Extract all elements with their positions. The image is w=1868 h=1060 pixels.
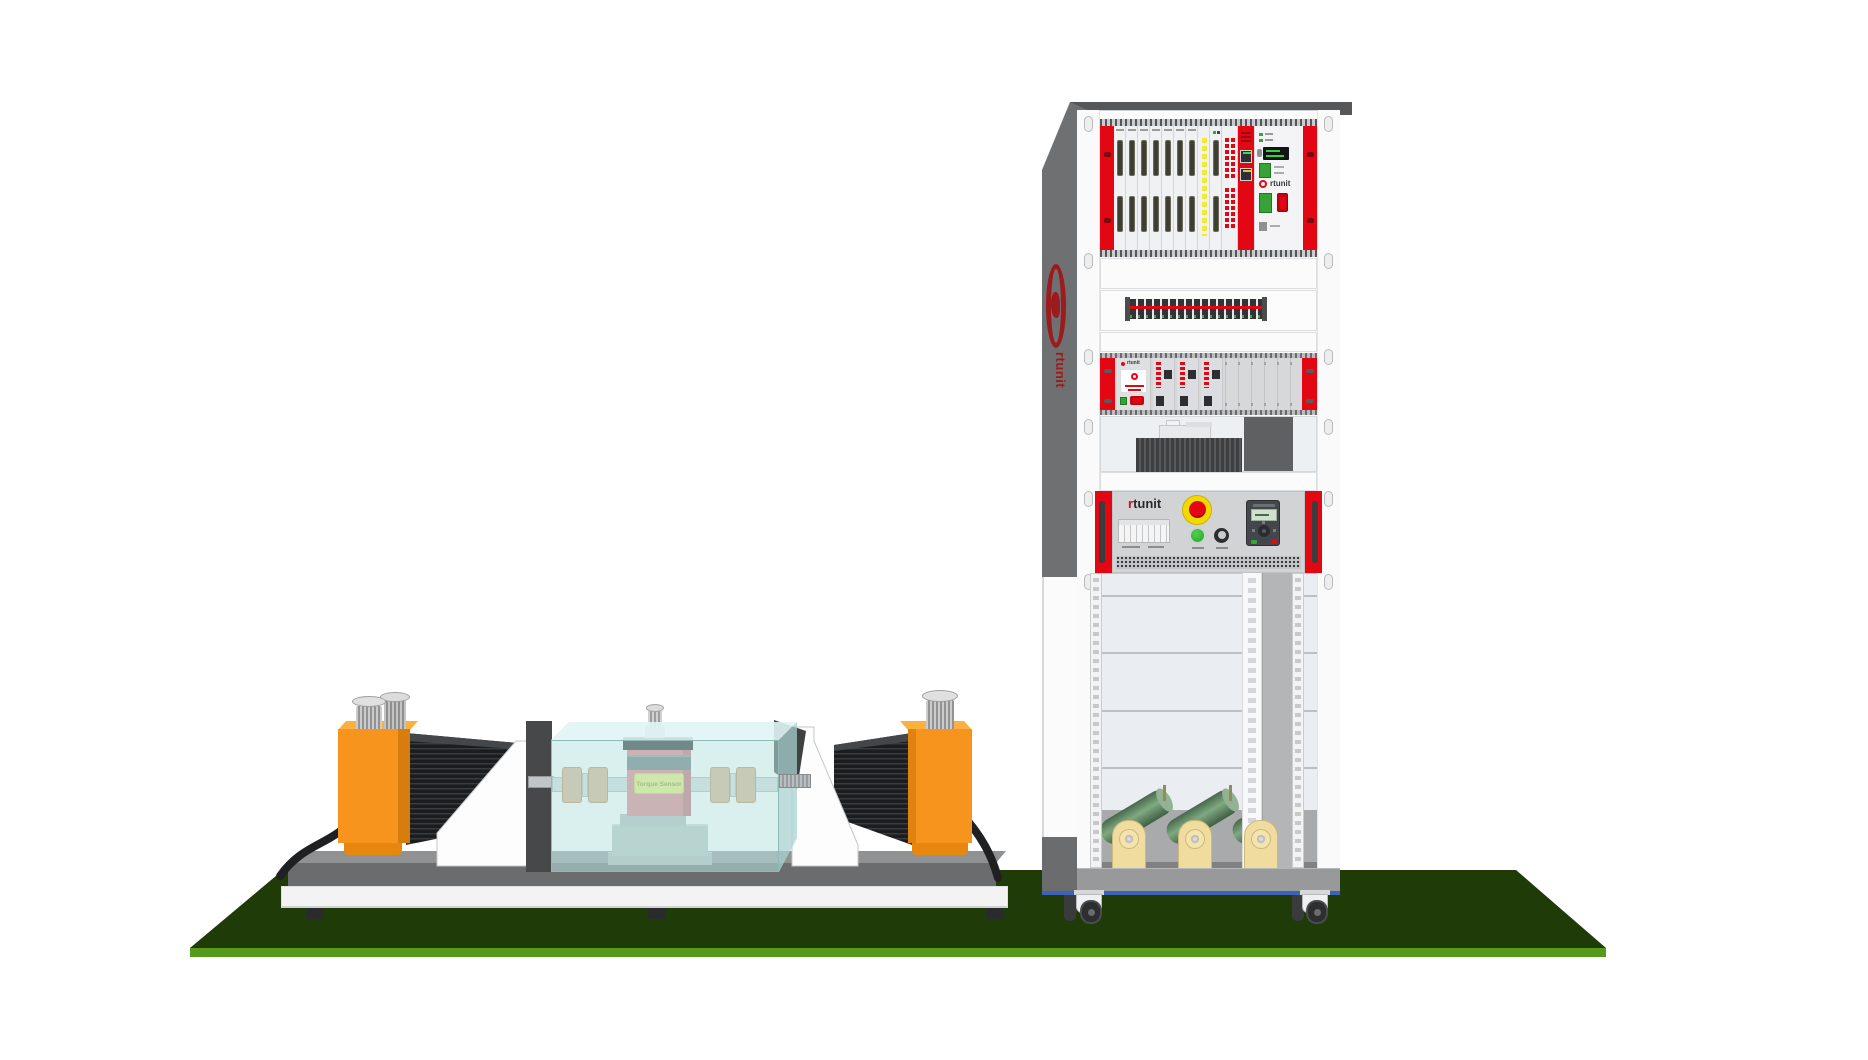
punched-holes xyxy=(1248,578,1256,862)
selector-knob xyxy=(1214,528,1229,543)
dsub-connector xyxy=(1177,140,1183,176)
card-label-dash xyxy=(1265,133,1273,135)
io-card xyxy=(1186,126,1198,250)
bench-foot xyxy=(648,908,666,919)
drive-motor-left-body xyxy=(406,733,540,845)
dsub-connector xyxy=(1189,140,1195,176)
bench-table-slab xyxy=(281,886,1008,908)
card-label-dash xyxy=(1128,129,1136,131)
amplifier-card xyxy=(1153,358,1175,410)
motor-pedestal-left xyxy=(437,741,544,866)
dsub-connector xyxy=(1213,196,1219,232)
dsub-connector xyxy=(1141,196,1147,232)
keypad-nav-center xyxy=(1262,529,1266,533)
io-chassis-screw-strip-bottom xyxy=(1100,250,1317,257)
motor-junction-box-left-foot xyxy=(344,843,402,855)
shelf-side-panel xyxy=(1244,417,1293,471)
screw-strip xyxy=(1100,410,1317,415)
dsub-connector xyxy=(1117,140,1123,176)
flange-slot xyxy=(1104,399,1112,403)
vfd-keypad xyxy=(1246,500,1280,546)
panel-label-dash xyxy=(1216,547,1228,549)
control-panel-logo: rtunit xyxy=(1128,496,1178,510)
floor-mat-front-edge xyxy=(190,948,1606,957)
post-slot xyxy=(1324,491,1333,507)
post-slot xyxy=(1084,419,1093,435)
keypad-title-dash xyxy=(1253,504,1275,507)
post-slot xyxy=(1324,253,1333,269)
amp-blank-slots xyxy=(1225,358,1302,410)
amp-connector xyxy=(1188,370,1196,379)
led-column-red xyxy=(1156,362,1161,388)
amplifier-logo-text: rtunit xyxy=(1127,360,1149,367)
io-card xyxy=(1174,126,1186,250)
amp-connector xyxy=(1164,370,1172,379)
card-label-dash xyxy=(1164,129,1172,131)
start-indicator-button xyxy=(1189,527,1206,544)
keypad-key xyxy=(1273,529,1276,532)
post-slot xyxy=(1084,116,1093,132)
drive-motor-right-body xyxy=(834,733,912,845)
io-chassis-screw-strip-top xyxy=(1100,119,1317,126)
enclosure-bracket-left xyxy=(526,721,552,872)
control-flange-right xyxy=(1305,491,1322,573)
amplifier-chassis: rtunit xyxy=(1100,353,1317,415)
flange-slot xyxy=(1307,152,1314,157)
stand-bolt xyxy=(1125,835,1133,843)
blank-panel xyxy=(1100,332,1317,352)
rack-side-logo-text: rtunit xyxy=(1044,352,1068,412)
display-text-line xyxy=(1266,155,1284,157)
terminal-grid xyxy=(1225,138,1229,178)
panel-label-dash xyxy=(1192,547,1204,549)
amplifier-card xyxy=(1177,358,1199,410)
emergency-stop-button xyxy=(1189,501,1206,518)
motor-pedestal-right xyxy=(792,727,858,866)
post-slot xyxy=(1324,116,1333,132)
port-led xyxy=(1243,152,1251,154)
motor-junction-box-left-side xyxy=(398,729,410,843)
port-led xyxy=(1243,170,1251,172)
io-chassis: rtunit xyxy=(1100,119,1317,257)
knob-center xyxy=(1218,531,1226,539)
amp-branding-card: rtunit xyxy=(1117,358,1151,410)
ethernet-port xyxy=(1240,150,1252,163)
scene: Torque Sensor rtunit xyxy=(0,0,1868,1060)
equipment-shelf xyxy=(1100,416,1317,472)
drive-motor-right-top xyxy=(834,733,912,751)
rack-caster xyxy=(1298,890,1336,926)
dsub-connector xyxy=(1141,140,1147,176)
terminal-grid xyxy=(1231,138,1235,178)
keypad-display xyxy=(1251,509,1277,521)
flange-slot xyxy=(1307,218,1314,223)
keypad-key xyxy=(1252,529,1255,532)
rtunit-logo-icon xyxy=(1121,362,1125,366)
post-slot xyxy=(1084,253,1093,269)
green-terminal-block xyxy=(1259,193,1272,213)
card-label-dash xyxy=(1116,129,1124,131)
dsub-connector xyxy=(1189,196,1195,232)
led-column-red xyxy=(1204,362,1209,388)
power-rocker-switch xyxy=(1130,396,1144,405)
label-red-line xyxy=(1125,385,1144,387)
rtunit-logo-icon-side-blob xyxy=(1051,292,1060,318)
caster-hub xyxy=(1088,909,1095,916)
io-card xyxy=(1114,126,1126,250)
terminal-strip-segments xyxy=(1119,525,1169,542)
connector-card xyxy=(1210,126,1222,250)
torque-sensor-connector-cap xyxy=(646,704,664,712)
flange-handle xyxy=(1099,501,1105,563)
flange-slot xyxy=(1104,152,1111,157)
flange-slot xyxy=(1306,399,1314,403)
sensor-enclosure-glass-front xyxy=(551,740,779,872)
dsub-connector xyxy=(1177,196,1183,232)
din-green-led-row xyxy=(1130,315,1262,318)
rail-holes xyxy=(1093,578,1099,865)
amp-flange-right xyxy=(1302,358,1317,410)
slot-screws xyxy=(1225,403,1302,406)
io-chassis-logo-text: rtunit xyxy=(1270,179,1300,189)
stand-bolt xyxy=(1191,835,1199,843)
label-red-line xyxy=(1128,389,1141,391)
rack-base-front xyxy=(1077,868,1340,891)
rail-holes xyxy=(1295,578,1301,865)
amp-flange-left xyxy=(1100,358,1115,410)
status-led xyxy=(1259,133,1263,136)
terminal-block-card xyxy=(1222,126,1238,250)
caster-hub xyxy=(1314,909,1321,916)
rack-rail-right xyxy=(1292,573,1304,868)
terminal-grid xyxy=(1225,188,1229,228)
rocker-inner xyxy=(1133,398,1141,403)
dsub-connector xyxy=(1165,196,1171,232)
din-red-bus-line xyxy=(1130,306,1262,309)
resistor-pin xyxy=(1163,785,1166,801)
led-column-red xyxy=(1180,362,1185,388)
bench-foot xyxy=(986,908,1004,919)
keypad-run-key xyxy=(1251,540,1257,544)
vent-dots xyxy=(1241,132,1251,144)
keypad-stop-key xyxy=(1271,540,1277,544)
slot-screws xyxy=(1225,362,1302,365)
rack-post-right xyxy=(1317,110,1340,868)
card-label-dash xyxy=(1274,166,1284,168)
resistor-stand xyxy=(1178,820,1212,874)
dsub-connector xyxy=(1165,140,1171,176)
flange-handle xyxy=(1312,501,1318,563)
amp-label-box xyxy=(1120,369,1147,393)
sensor-enclosure-glass-side xyxy=(779,716,797,872)
flange-slot xyxy=(1306,369,1314,373)
io-chassis-flange-left xyxy=(1100,126,1114,250)
rtunit-logo-icon xyxy=(1131,373,1138,380)
aux-connector xyxy=(1257,149,1262,157)
keypad-key xyxy=(1262,521,1265,524)
drive-unit-top-block xyxy=(1159,425,1211,439)
dsub-connector xyxy=(1129,140,1135,176)
dsub-connector xyxy=(1153,140,1159,176)
panel-label-dash xyxy=(1122,546,1140,548)
ethernet-port xyxy=(1240,168,1252,181)
dsub-connector xyxy=(1213,140,1219,176)
dsub-connector xyxy=(1153,196,1159,232)
sensor-enclosure-glass-top xyxy=(551,716,798,740)
post-slot xyxy=(1084,349,1093,365)
interface-card xyxy=(1238,126,1254,250)
card-label-dash xyxy=(1152,129,1160,131)
amp-connector xyxy=(1180,396,1188,406)
dsub-connector xyxy=(1117,196,1123,232)
io-chassis-flange-right xyxy=(1303,126,1317,250)
stand-bolt xyxy=(1257,835,1265,843)
terminal-grid xyxy=(1231,188,1235,228)
flange-slot xyxy=(1104,369,1112,373)
io-card xyxy=(1150,126,1162,250)
blank-panel xyxy=(1100,258,1317,289)
post-slot xyxy=(1324,574,1333,590)
controller-display xyxy=(1263,147,1289,160)
rack-rail-left xyxy=(1090,573,1102,868)
display-text-line xyxy=(1255,514,1269,516)
card-label-dash xyxy=(1270,225,1280,227)
terminal-strip xyxy=(1118,519,1170,543)
panel-label-dash xyxy=(1148,546,1164,548)
vent-grille xyxy=(1116,556,1301,569)
card-label-dash xyxy=(1176,129,1184,131)
controller-card: rtunit xyxy=(1254,126,1303,250)
drive-unit-heatsink xyxy=(1136,438,1242,472)
green-terminal-block xyxy=(1259,163,1271,178)
shaft-stub-right xyxy=(779,774,811,788)
status-led xyxy=(1259,139,1263,142)
card-label-dash xyxy=(1188,129,1196,131)
motor-junction-box-right-foot xyxy=(912,843,968,855)
rocker-inner xyxy=(1280,197,1286,209)
keypad-nav-cluster xyxy=(1258,525,1270,537)
rtunit-logo-icon xyxy=(1259,180,1267,188)
breaker-strip-panel xyxy=(1100,290,1317,331)
amp-connector xyxy=(1156,396,1164,406)
status-led xyxy=(1217,131,1220,134)
io-card xyxy=(1138,126,1150,250)
amp-connector xyxy=(1204,396,1212,406)
power-rocker-switch xyxy=(1277,193,1288,212)
drive-unit-top-block xyxy=(1186,422,1212,427)
flange-slot xyxy=(1104,218,1111,223)
control-panel: rtunit xyxy=(1095,491,1322,573)
drive-motor-left-top xyxy=(406,733,540,751)
motor-connector-right-cap xyxy=(922,690,958,702)
post-slot xyxy=(1324,349,1333,365)
dsub-connector xyxy=(1129,196,1135,232)
resistor-stand xyxy=(1244,820,1278,874)
motor-junction-box-right xyxy=(908,729,972,843)
aux-connector xyxy=(1259,222,1267,231)
resistor-pin xyxy=(1229,785,1232,801)
control-panel-logo-text: tunit xyxy=(1133,496,1161,511)
motor-connector-left-rear xyxy=(384,700,406,730)
control-flange-left xyxy=(1095,491,1112,573)
rack-base-side xyxy=(1042,837,1077,893)
post-slot xyxy=(1084,491,1093,507)
amplifier-card xyxy=(1201,358,1223,410)
post-slot xyxy=(1324,419,1333,435)
motor-connector-left-front-cap xyxy=(352,696,386,707)
resistor-stand xyxy=(1112,820,1146,874)
io-card xyxy=(1162,126,1174,250)
rack-caster xyxy=(1072,890,1110,926)
io-card xyxy=(1126,126,1138,250)
led-column-yellow xyxy=(1202,138,1207,236)
blank-panel xyxy=(1100,472,1317,491)
card-label-dash xyxy=(1140,129,1148,131)
status-led xyxy=(1213,131,1216,134)
din-end-bracket xyxy=(1262,297,1267,321)
card-label-dash xyxy=(1265,139,1273,141)
display-text-line xyxy=(1266,150,1280,152)
motor-junction-box-right-side xyxy=(908,729,916,843)
green-terminal-block xyxy=(1120,397,1127,405)
led-indicator-card xyxy=(1198,126,1210,250)
amp-connector xyxy=(1212,370,1220,379)
card-label-dash xyxy=(1274,172,1284,174)
bench-foot xyxy=(306,908,324,919)
